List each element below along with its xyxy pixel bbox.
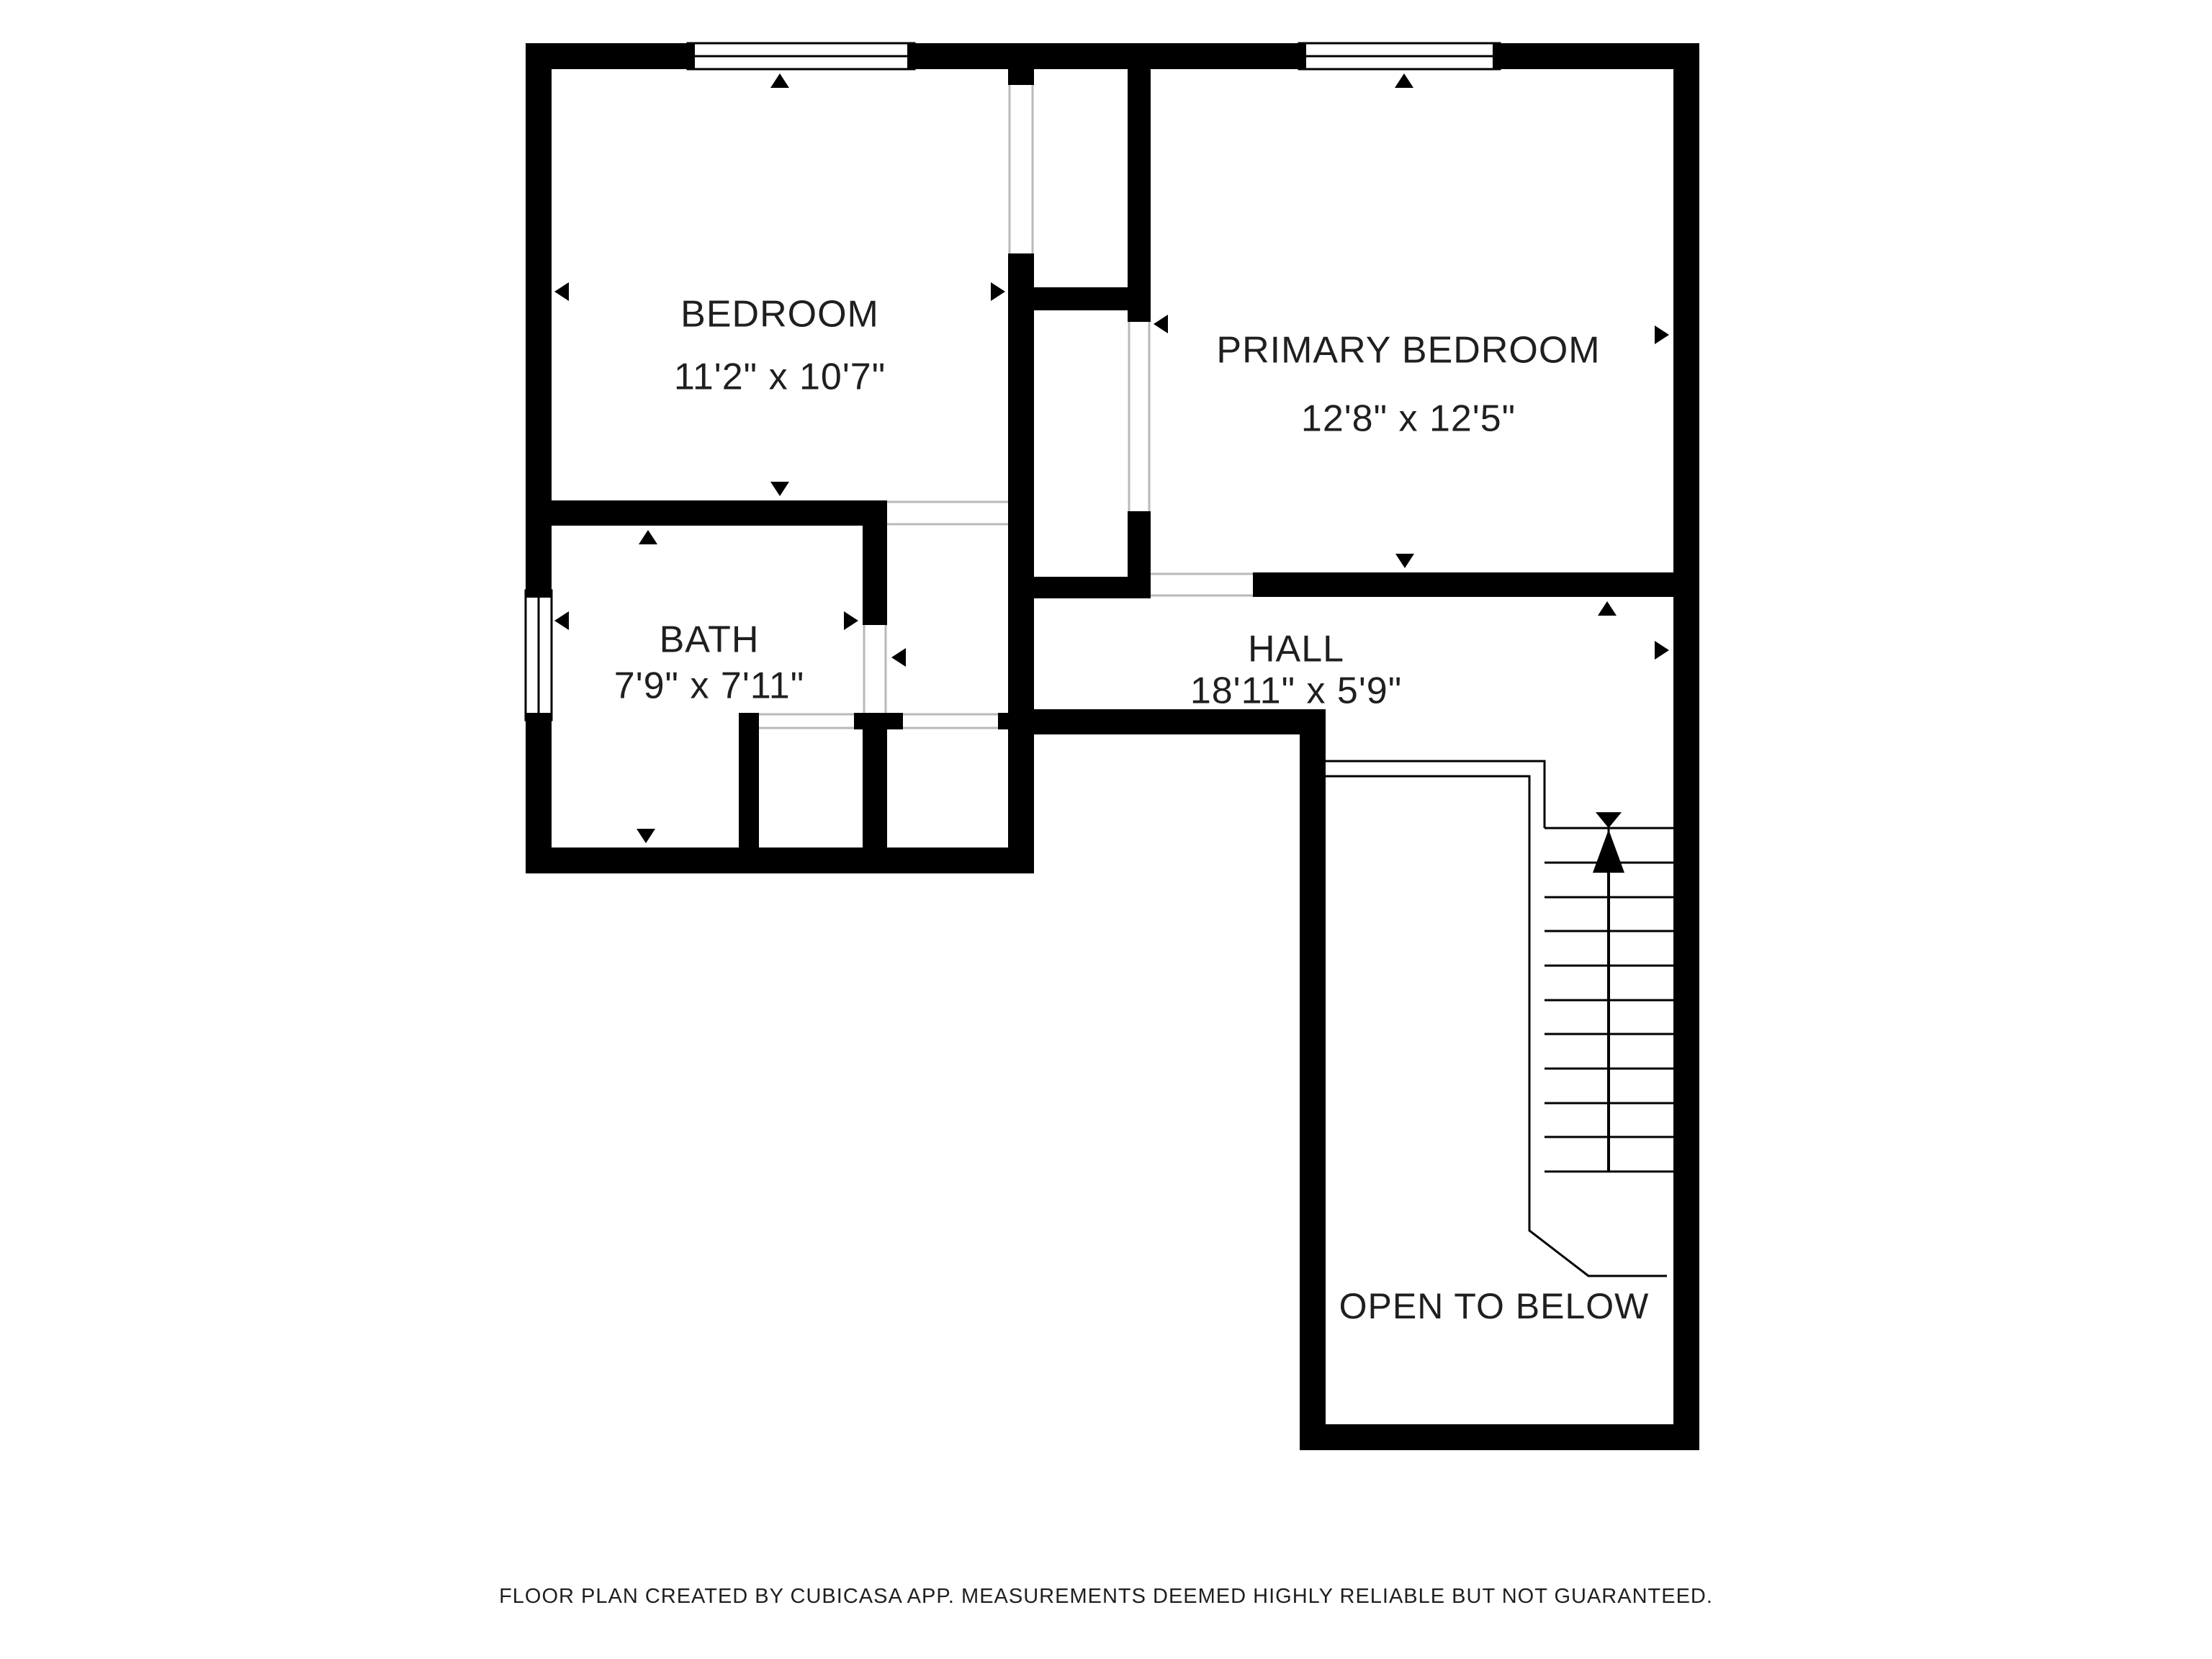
room-label-bedroom: BEDROOM (680, 294, 879, 336)
dimension-arrow-right-icon (991, 282, 1005, 301)
wall-segment (1300, 1424, 1699, 1450)
room-label-open-to-below: OPEN TO BELOW (1339, 1286, 1650, 1326)
door-openings-layer (759, 85, 1253, 729)
dimension-arrow-down-icon (770, 482, 789, 496)
room-label-bath: BATH (660, 619, 760, 661)
door-opening (1008, 85, 1034, 253)
wall-segment (1128, 69, 1151, 322)
wall-segment (1673, 43, 1699, 1450)
stair-up-arrow-icon (1593, 829, 1624, 873)
dimension-arrow-up-icon (1598, 601, 1617, 616)
room-label-primary-bedroom: PRIMARY BEDROOM (1216, 330, 1600, 372)
dimension-arrow-left-icon (554, 611, 569, 630)
wall-segment (1253, 572, 1673, 597)
wall-segment (863, 729, 887, 848)
dimension-arrow-down-icon (637, 829, 655, 843)
stair-landing-outer-line (1326, 761, 1545, 828)
floor-plan-canvas: BEDROOM11'2" x 10'7"PRIMARY BEDROOM12'8"… (0, 0, 2212, 1659)
window-cap (526, 713, 552, 720)
dimension-arrow-left-icon (891, 648, 906, 667)
window-cap (1493, 43, 1500, 69)
footer-layer: FLOOR PLAN CREATED BY CUBICASA APP. MEAS… (499, 1585, 1713, 1608)
dimension-arrow-left-icon (554, 282, 569, 301)
room-label-hall: HALL (1248, 629, 1344, 670)
wall-segment (526, 500, 887, 526)
stairs-layer (1326, 761, 1673, 1276)
walls-layer (526, 43, 1699, 1450)
dimension-arrow-up-icon (639, 530, 657, 544)
stair-top-marker-icon (1596, 812, 1622, 828)
wall-segment (863, 526, 887, 625)
wall-segment (1008, 69, 1034, 85)
wall-segment (1300, 709, 1326, 1450)
wall-segment (1128, 511, 1151, 577)
wall-segment (1008, 709, 1326, 734)
wall-segment (1008, 253, 1034, 873)
window-cap (526, 590, 552, 598)
door-opening (1151, 572, 1253, 597)
dimension-arrow-right-icon (1655, 325, 1669, 344)
wall-segment (526, 69, 552, 873)
room-dimensions-bath: 7'9" x 7'11" (614, 665, 804, 707)
window-cap (907, 43, 914, 69)
door-opening (1128, 322, 1151, 511)
room-dimensions-primary-bedroom: 12'8" x 12'5" (1301, 398, 1516, 440)
dimension-arrow-up-icon (1395, 73, 1413, 88)
footer-disclaimer: FLOOR PLAN CREATED BY CUBICASA APP. MEAS… (499, 1585, 1713, 1608)
wall-segment (1008, 577, 1151, 598)
door-opening (863, 625, 887, 713)
door-opening (887, 500, 1008, 526)
dimension-arrow-left-icon (1154, 315, 1168, 333)
wall-segment (854, 713, 903, 729)
floor-plan-page: BEDROOM11'2" x 10'7"PRIMARY BEDROOM12'8"… (0, 0, 2212, 1659)
room-dimensions-hall: 18'11" x 5'9" (1190, 670, 1402, 712)
dimension-arrow-right-icon (1655, 641, 1669, 660)
dimension-arrow-right-icon (844, 611, 858, 630)
window-cap (1299, 43, 1306, 69)
wall-segment (739, 713, 759, 848)
wall-segment (526, 848, 1034, 873)
dimension-arrow-up-icon (770, 73, 789, 88)
window-cap (688, 43, 695, 69)
room-dimensions-bedroom: 11'2" x 10'7" (674, 356, 886, 398)
wall-segment (998, 713, 1034, 729)
dimension-arrow-down-icon (1395, 554, 1414, 568)
